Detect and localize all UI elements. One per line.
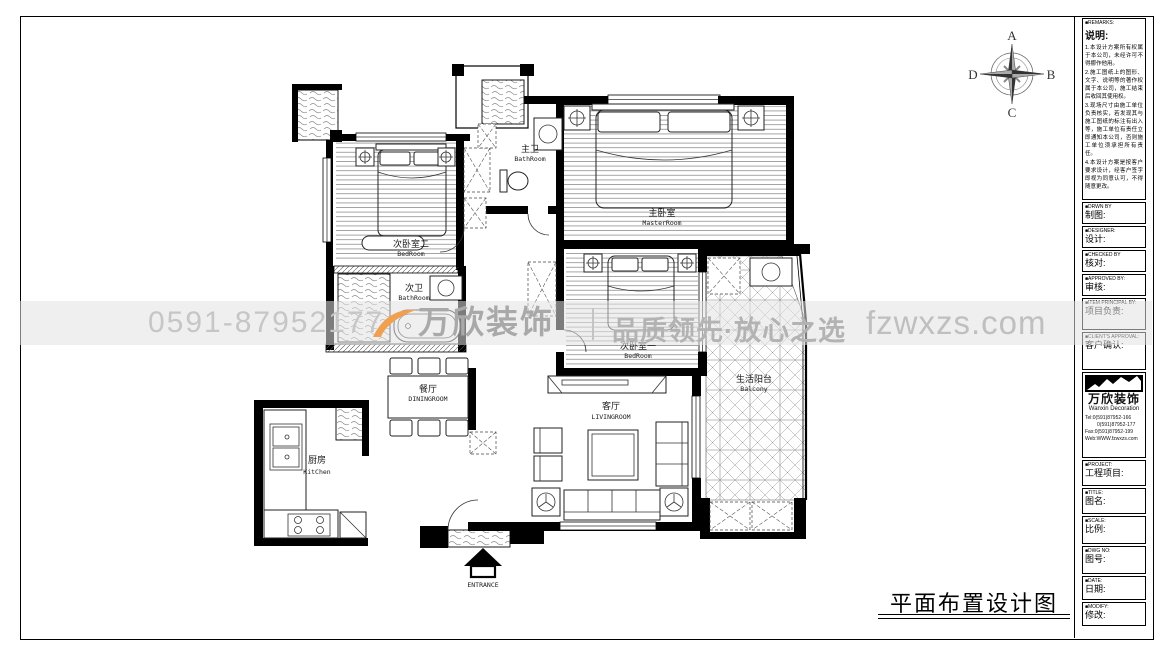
- remarks-note-4: 4.本设计方案是按客户要求设计，经客户签字即视为同意认可，不得随意更改。: [1085, 159, 1143, 191]
- watermark-divider: [592, 308, 594, 340]
- balcony-washer: [750, 258, 792, 286]
- company-name-zh: 万欣装饰: [1085, 393, 1143, 406]
- titleblock-approved-by: ■APPROVED BY: 审核:: [1082, 274, 1146, 296]
- room-label-balcony-zh: 生活阳台: [736, 373, 772, 384]
- room-label-master-en: MasterRoom: [642, 219, 681, 227]
- titleblock-project: ■PROJECT: 工程项目:: [1082, 460, 1146, 486]
- room-label-master-zh: 主卧室: [648, 207, 675, 218]
- company-name-en: Wanxin Decoration: [1085, 406, 1143, 413]
- company-tel2: 0(591)87952-177: [1085, 422, 1143, 429]
- room-label-dining-zh: 餐厅: [419, 383, 437, 394]
- sheet-title-underline-2: [878, 618, 1070, 619]
- remarks-note-2: 2.施工图纸上的图形、文字、说明等的著作权属于本公司，施工结束后收回其使用权。: [1085, 69, 1143, 101]
- titleblock-company: 万欣装饰 Wanxin Decoration Tel:0(591)87952-1…: [1082, 372, 1146, 458]
- wanxin-logo-banner: [1085, 375, 1143, 392]
- wanxin-logo-skyline: [1085, 375, 1143, 392]
- titleblock-drwn-by: ■DRWN BY 制图:: [1082, 202, 1146, 224]
- titleblock-remarks: ■REMARKS: 说明: 1.本设计方案所有权属于本公司，未经许可不得挪作他用…: [1082, 18, 1146, 200]
- modify-label-zh: 修改:: [1085, 610, 1143, 621]
- room-label-master-bath-en: BathRoom: [514, 155, 545, 163]
- living-set: [532, 376, 688, 520]
- titleblock-designer: ■DESIGNER: 设计:: [1082, 226, 1146, 248]
- watermark-site: fzwxzs.com: [866, 304, 1047, 342]
- drwn-by-label-zh: 制图:: [1085, 210, 1143, 221]
- project-label-zh: 工程项目:: [1085, 468, 1143, 479]
- room-label-bath2-zh: 次卫: [405, 282, 423, 293]
- compass-letter-c: C: [1008, 105, 1017, 120]
- room-label-master-bath-zh: 主卫: [521, 143, 539, 154]
- room-label-balcony-en: Balcony: [740, 385, 767, 393]
- designer-label-zh: 设计:: [1085, 234, 1143, 245]
- scale-label-zh: 比例:: [1085, 524, 1143, 535]
- room-label-dining-en: DININGROOM: [408, 395, 447, 403]
- room-label-living-zh: 客厅: [602, 400, 620, 411]
- checked-by-label-zh: 核对:: [1085, 258, 1143, 269]
- remarks-label-zh: 说明:: [1085, 27, 1143, 42]
- entrance-arrow: [464, 548, 502, 577]
- titleblock-modify: ■MODIFY: 修改:: [1082, 602, 1146, 626]
- room-label-living-en: LIVINGROOM: [591, 413, 630, 421]
- compass-letter-d: D: [968, 67, 977, 82]
- titleblock-scale: ■SCALE: 比例:: [1082, 516, 1146, 544]
- titleblock-date: ■DATE: 日期:: [1082, 576, 1146, 600]
- remarks-note-1: 1.本设计方案所有权属于本公司，未经许可不得挪作他用。: [1085, 44, 1143, 68]
- titleblock-checked-by: ■CHECKED BY 核对:: [1082, 250, 1146, 272]
- company-web: Web:WWW.fzwxzs.com: [1085, 436, 1143, 443]
- title-label-zh: 图名:: [1085, 496, 1143, 507]
- remarks-note-3: 3.现场尺寸由施工单位负责核实，若发现其与施工图纸的标注有出入等，施工单位有责任…: [1085, 102, 1143, 158]
- date-label-zh: 日期:: [1085, 584, 1143, 595]
- approved-by-label-zh: 审核:: [1085, 282, 1143, 293]
- sheet-title-underline-1: [878, 614, 1070, 615]
- titleblock-title: ■TITLE: 图名:: [1082, 488, 1146, 514]
- titleblock-dwg-no: ■DWG NO: 图号:: [1082, 546, 1146, 574]
- room-label-bedroom2-zh: 次卧室二: [393, 238, 429, 249]
- room-label-bedroom1-en: BedRoom: [624, 352, 651, 360]
- watermark-brand: 万欣装饰: [418, 304, 554, 340]
- company-fax: Fax:0(591)87952-199: [1085, 429, 1143, 436]
- watermark-logo: 万欣装饰: [372, 304, 554, 340]
- company-tel1: Tel:0(591)87952-166: [1085, 415, 1143, 422]
- compass-letter-b: B: [1047, 67, 1056, 82]
- entrance-label: ENTRANCE: [467, 581, 498, 589]
- room-label-kitchen-zh: 厨房: [308, 454, 326, 465]
- room-label-kitchen-en: KitChen: [303, 468, 330, 476]
- drawing-sheet: { "sheet_title": "平面布置设计图", "compass": {…: [0, 0, 1171, 654]
- dwg-no-label-zh: 图号:: [1085, 554, 1143, 565]
- compass-letter-a: A: [1007, 28, 1017, 43]
- watermark-slogan: 品质领先·放心之选: [612, 309, 846, 348]
- watermark-phone: 0591-87952177: [148, 306, 384, 340]
- compass-rose: A B C D: [968, 28, 1055, 120]
- remarks-label-en: ■REMARKS:: [1085, 20, 1143, 26]
- watermark-swoosh-icon: [372, 304, 418, 340]
- room-label-bedroom2-en: BedRoom: [397, 250, 424, 258]
